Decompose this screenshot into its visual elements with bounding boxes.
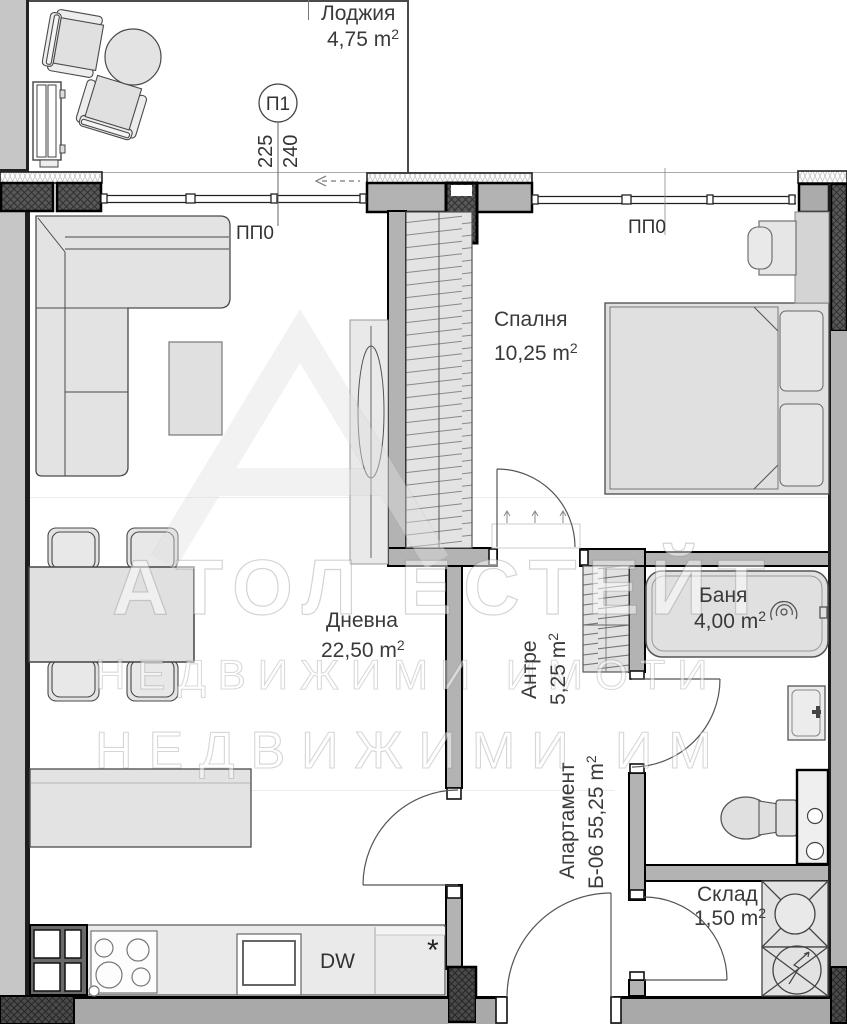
svg-text:DW: DW — [320, 950, 355, 973]
svg-text:240: 240 — [280, 135, 302, 168]
svg-text:ПП0: ПП0 — [628, 217, 666, 238]
svg-text:Склад: Склад — [697, 883, 758, 906]
svg-text:НЕДВИЖИМИ ИМОТИ: НЕДВИЖИМИ ИМОТИ — [95, 651, 720, 698]
svg-text:*: * — [427, 934, 439, 967]
svg-text:5,25 m2: 5,25 m2 — [545, 633, 570, 705]
svg-text:1,50 m2: 1,50 m2 — [694, 905, 766, 930]
svg-text:ПП0: ПП0 — [236, 223, 274, 244]
svg-text:4,75 m2: 4,75 m2 — [327, 26, 399, 51]
svg-text:Б-06 55,25 m2: Б-06 55,25 m2 — [583, 755, 608, 889]
svg-text:Баня: Баня — [699, 584, 747, 607]
svg-text:225: 225 — [255, 135, 277, 168]
svg-text:АТОЛ ЕСТЕЙТ: АТОЛ ЕСТЕЙТ — [112, 543, 776, 631]
svg-text:Лоджия: Лоджия — [321, 2, 395, 25]
svg-text:22,50 m2: 22,50 m2 — [321, 637, 405, 662]
svg-text:Апартамент: Апартамент — [556, 762, 579, 879]
svg-text:Антре: Антре — [518, 640, 541, 699]
svg-text:НЕДВИЖИМИ ИМ: НЕДВИЖИМИ ИМ — [95, 722, 728, 780]
svg-text:10,25 m2: 10,25 m2 — [494, 340, 578, 365]
svg-text:4,00 m2: 4,00 m2 — [694, 608, 766, 633]
svg-text:П1: П1 — [266, 94, 290, 115]
svg-text:Дневна: Дневна — [326, 609, 398, 632]
svg-text:Спалня: Спалня — [494, 308, 567, 331]
